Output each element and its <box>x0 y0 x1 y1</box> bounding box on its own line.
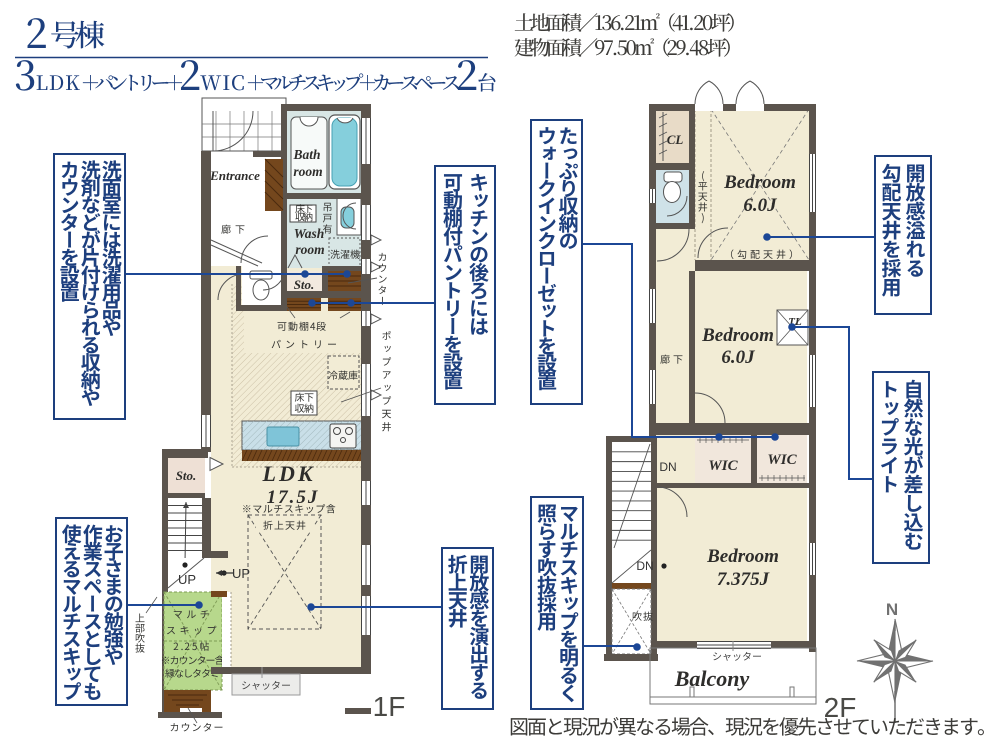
svg-text:Wash: Wash <box>294 226 325 241</box>
svg-text:DN: DN <box>636 559 653 573</box>
svg-text:CL: CL <box>667 132 684 147</box>
svg-text:Bath: Bath <box>292 147 320 162</box>
svg-text:Sto.: Sto. <box>294 277 315 292</box>
svg-text:6.0J: 6.0J <box>743 195 777 216</box>
svg-text:6.0J: 6.0J <box>721 347 755 368</box>
svg-text:Bedroom: Bedroom <box>723 172 796 193</box>
svg-text:1F: 1F <box>373 691 406 722</box>
svg-text:Sto.: Sto. <box>176 468 197 483</box>
svg-text:LDK: LDK <box>262 461 316 486</box>
svg-text:room: room <box>295 242 324 257</box>
svg-text:2F: 2F <box>824 692 857 723</box>
svg-text:WIC: WIC <box>708 458 738 474</box>
svg-text:7.375J: 7.375J <box>717 569 770 590</box>
svg-text:N: N <box>886 600 898 619</box>
svg-text:DN: DN <box>659 460 676 474</box>
svg-text:17.5J: 17.5J <box>267 487 320 508</box>
svg-text:room: room <box>293 164 322 179</box>
svg-text:Bedroom: Bedroom <box>706 546 779 567</box>
svg-text:Entrance: Entrance <box>209 168 260 183</box>
svg-text:UP: UP <box>178 572 196 587</box>
svg-text:WIC: WIC <box>767 452 797 468</box>
svg-text:Balcony: Balcony <box>674 666 750 691</box>
svg-text:UP: UP <box>232 566 250 581</box>
svg-text:Bedroom: Bedroom <box>701 325 774 346</box>
